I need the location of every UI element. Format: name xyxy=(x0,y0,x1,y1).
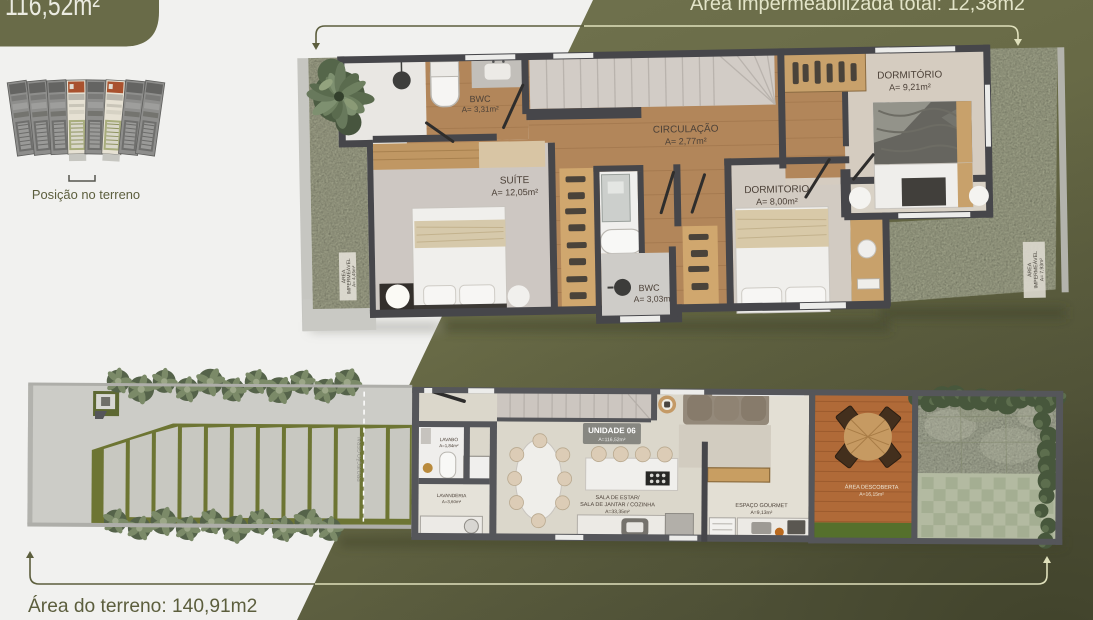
svg-text:PROJEÇÃO GERAL: PROJEÇÃO GERAL xyxy=(356,435,363,481)
svg-text:BWC: BWC xyxy=(469,94,491,104)
svg-text:Área impermeabilizada total: 1: Área impermeabilizada total: 12,38m2 xyxy=(690,0,1025,15)
svg-text:A=1,84m²: A=1,84m² xyxy=(439,443,459,448)
svg-text:A=3,60m²: A=3,60m² xyxy=(442,499,462,504)
svg-text:SUÍTE: SUÍTE xyxy=(500,173,530,187)
svg-text:SALA DE JANTAR / COZINHA: SALA DE JANTAR / COZINHA xyxy=(580,502,655,508)
svg-text:A= 8,00m²: A= 8,00m² xyxy=(756,196,798,207)
svg-text:A=9,13m²: A=9,13m² xyxy=(751,510,773,516)
svg-text:116,52m²: 116,52m² xyxy=(5,0,100,22)
svg-text:SALA DE ESTAR/: SALA DE ESTAR/ xyxy=(596,495,640,501)
svg-text:A= 9,21m²: A= 9,21m² xyxy=(889,82,931,93)
svg-text:ESPAÇO GOURMET: ESPAÇO GOURMET xyxy=(735,503,788,509)
svg-text:A= 4,45m²: A= 4,45m² xyxy=(351,265,356,287)
svg-text:A= 7,93m²: A= 7,93m² xyxy=(1039,258,1045,282)
svg-text:Posição no terreno: Posição no terreno xyxy=(32,187,140,202)
svg-text:A= 12,05m²: A= 12,05m² xyxy=(491,187,538,198)
svg-text:DORMITÓRIO: DORMITÓRIO xyxy=(877,67,942,81)
svg-text:A=33,35m²: A=33,35m² xyxy=(605,509,630,515)
svg-text:A= 2,77m²: A= 2,77m² xyxy=(665,136,707,147)
svg-text:CIRCULAÇÃO: CIRCULAÇÃO xyxy=(653,122,719,136)
svg-text:UNIDADE 06: UNIDADE 06 xyxy=(588,426,636,435)
svg-text:Área do terreno: 140,91m2: Área do terreno: 140,91m2 xyxy=(28,596,257,617)
svg-text:A=16,15m²: A=16,15m² xyxy=(859,492,884,498)
svg-text:A= 3,03m²: A= 3,03m² xyxy=(634,293,674,304)
svg-text:A= 3,31m²: A= 3,31m² xyxy=(462,105,500,115)
svg-text:ÁREA DESCOBERTA: ÁREA DESCOBERTA xyxy=(845,484,899,491)
svg-text:BWC: BWC xyxy=(638,283,660,293)
svg-text:A=116,52m²: A=116,52m² xyxy=(598,437,625,443)
